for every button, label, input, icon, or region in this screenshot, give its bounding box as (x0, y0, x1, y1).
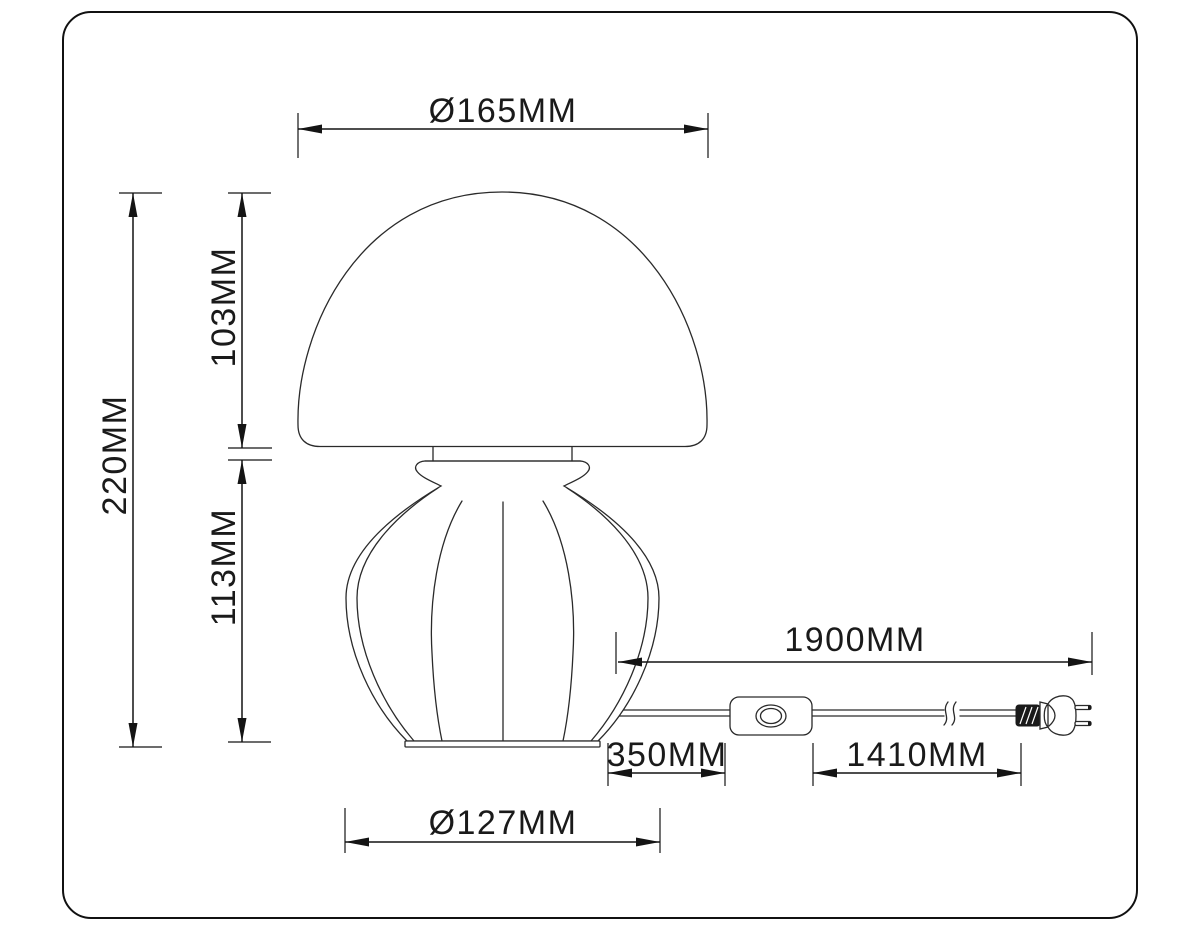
dim-label-cord-length: 1900MM (784, 621, 925, 659)
dim-shade-height: 103MM (205, 193, 272, 448)
lamp-base (346, 446, 659, 747)
lamp-shade (298, 192, 707, 447)
dim-base-height: 113MM (205, 460, 272, 742)
dim-switch-to-plug: 1410MM (813, 736, 1021, 786)
dim-label-base-to-switch: 350MM (607, 736, 728, 774)
dim-label-shade-diameter: Ø165MM (429, 92, 578, 130)
dim-cord-length: 1900MM (616, 621, 1092, 675)
dim-base-diameter: Ø127MM (345, 804, 660, 853)
plug-collar (1040, 702, 1048, 729)
drawing-border (63, 12, 1137, 918)
dimension-drawing-canvas: Ø165MM 220MM 103MM 113MM 1900MM 350MM (0, 0, 1200, 933)
lamp-dimension-drawing: Ø165MM 220MM 103MM 113MM 1900MM 350MM (0, 0, 1200, 933)
dim-label-base-diameter: Ø127MM (429, 804, 578, 842)
cord-break-symbol (944, 702, 956, 725)
dim-label-base-height: 113MM (205, 508, 243, 626)
dim-base-to-switch: 350MM (607, 736, 728, 786)
cord-switch (730, 697, 812, 735)
plug-prongs (1075, 706, 1091, 726)
dim-label-switch-to-plug: 1410MM (846, 736, 987, 774)
dim-label-shade-height: 103MM (205, 247, 243, 368)
plug-strain-relief (1016, 705, 1040, 726)
base-foot (405, 741, 600, 747)
plug-body (1048, 696, 1076, 735)
dim-total-height: 220MM (96, 193, 162, 747)
dim-label-total-height: 220MM (96, 395, 134, 516)
dim-shade-diameter: Ø165MM (298, 92, 708, 158)
power-plug (1016, 696, 1091, 735)
